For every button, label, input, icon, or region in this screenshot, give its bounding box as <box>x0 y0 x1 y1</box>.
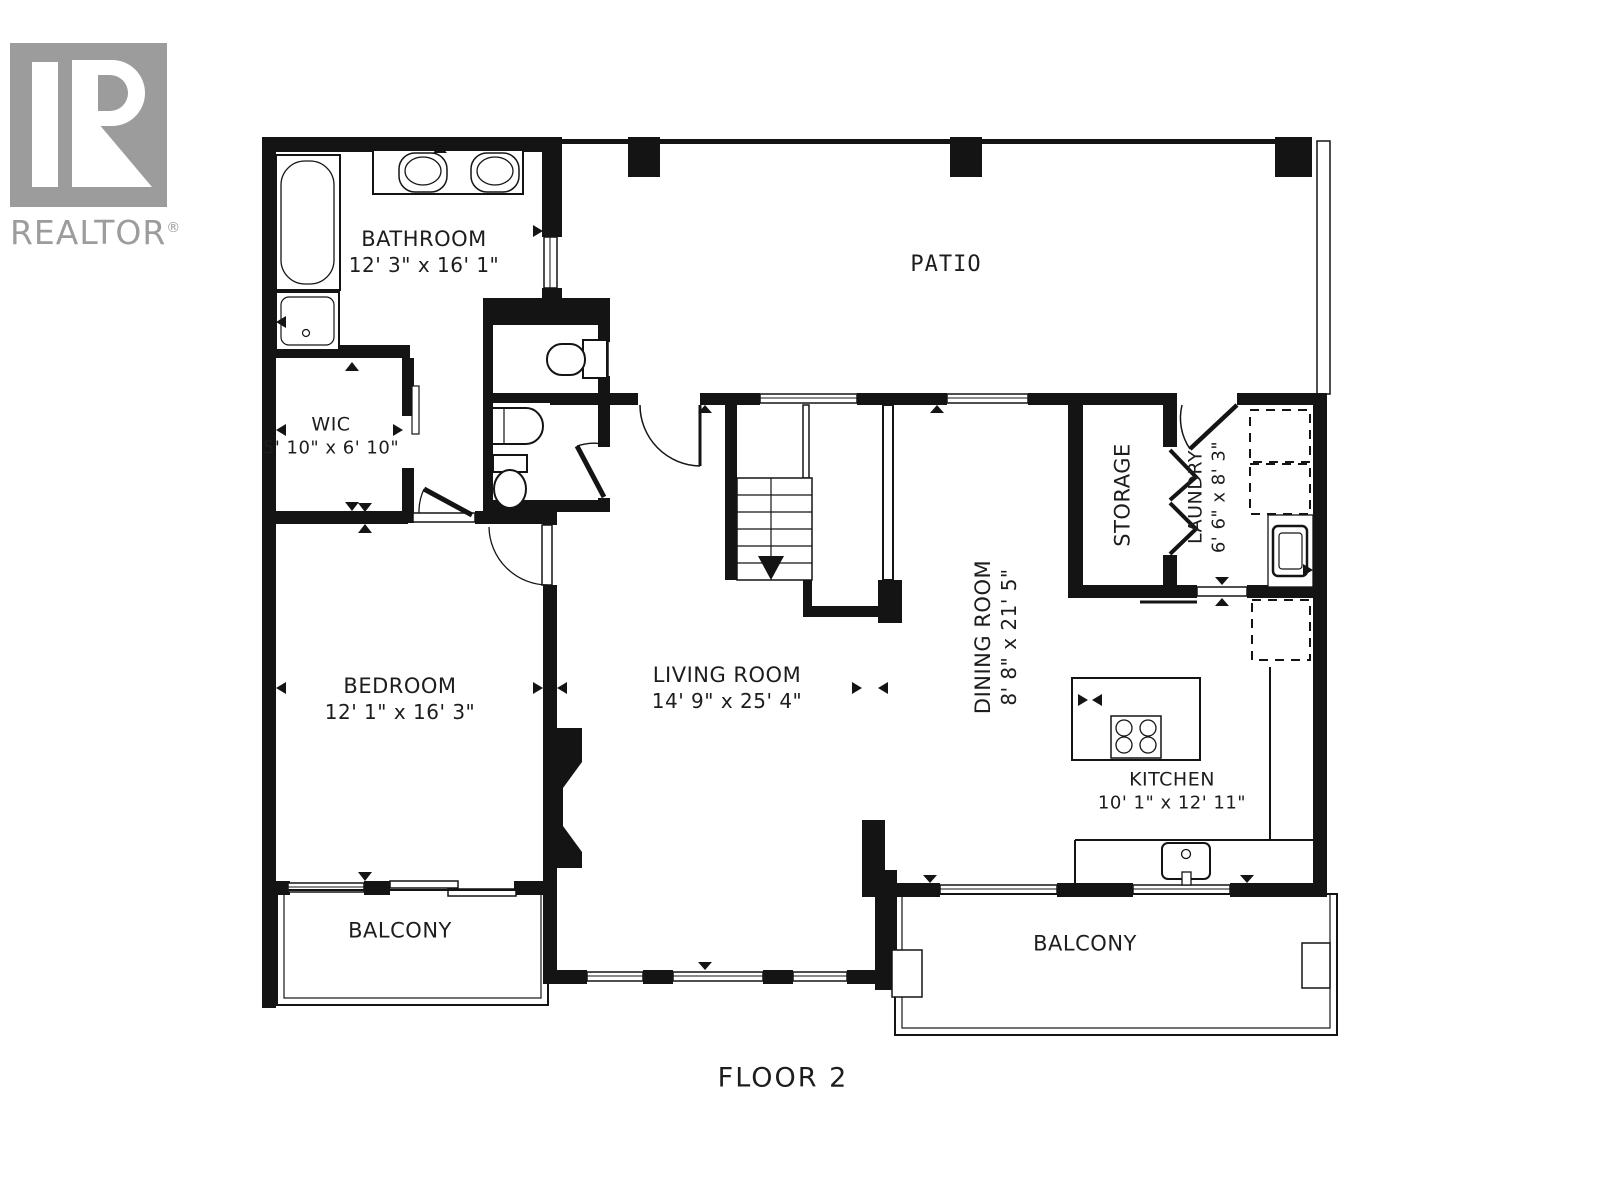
room-label-balcony-left: BALCONY <box>348 918 452 945</box>
kitchen-fixtures <box>1072 600 1313 885</box>
room-name: WIC <box>263 412 399 436</box>
bedroom-door-arc <box>489 527 548 585</box>
room-label-storage: STORAGE <box>1110 443 1137 546</box>
dimension-arrows-part <box>557 682 567 694</box>
room-name: BATHROOM <box>349 226 500 253</box>
room-dims: 14' 9" x 25' 4" <box>652 689 803 715</box>
room-name: BALCONY <box>348 918 452 945</box>
floor-label: FLOOR 2 <box>718 1063 849 1094</box>
walls-part <box>1313 393 1327 897</box>
room-label-laundry: LAUNDRY 6' 6" x 8' 3" <box>1183 441 1230 553</box>
floorplan-page: REALTOR® <box>0 0 1600 1200</box>
room-name: BEDROOM <box>325 673 476 700</box>
dimension-arrows-part <box>923 875 937 883</box>
room-name: PATIO <box>910 251 981 279</box>
walls-part <box>1237 393 1313 405</box>
toilet-tank <box>583 340 607 378</box>
room-dims: 5' 10" x 6' 10" <box>263 437 399 460</box>
fireplace <box>543 728 582 868</box>
washer-dashed <box>1250 410 1310 462</box>
refrigerator-dashed <box>1252 600 1310 660</box>
balcony-railing <box>277 890 548 1005</box>
bedroom-door-leaf <box>542 525 552 585</box>
balcony-railing <box>902 894 1330 1028</box>
balcony-planter <box>892 950 922 997</box>
walls-part <box>725 405 737 580</box>
patio-pillar <box>950 137 982 177</box>
room-name: LIVING ROOM <box>652 662 803 689</box>
dimension-arrows-part <box>533 682 543 694</box>
entry-door-arc <box>640 405 700 466</box>
walls-part <box>542 137 562 237</box>
stair-railing <box>883 405 893 580</box>
dimension-arrows-part <box>878 682 888 694</box>
powder-door-leaf <box>577 446 604 497</box>
room-label-dining-room: DINING ROOM 8' 8" x 21' 5" <box>970 560 1022 714</box>
walls-part <box>550 393 638 405</box>
walls-part <box>483 298 610 325</box>
dimension-arrows-part <box>345 362 359 371</box>
kitchen-fixtures-part <box>1182 872 1191 885</box>
powder-sink <box>492 408 543 444</box>
room-label-kitchen: KITCHEN 10' 1" x 12' 11" <box>1098 767 1246 814</box>
room-dims: 6' 6" x 8' 3" <box>1208 441 1231 553</box>
toilet-bowl <box>494 470 526 508</box>
walls-part <box>878 580 902 623</box>
dimension-arrows-part <box>345 502 359 511</box>
walls-part <box>262 511 408 524</box>
vanity-sink <box>471 153 519 192</box>
patio-railing <box>1317 141 1330 394</box>
walls-part <box>598 403 610 447</box>
room-label-balcony-right: BALCONY <box>1033 931 1137 958</box>
dimension-arrows-part <box>358 503 372 512</box>
floorplan-drawing <box>0 0 1600 1200</box>
walls-part <box>700 393 760 405</box>
walls-part <box>364 881 390 895</box>
room-label-bedroom: BEDROOM 12' 1" x 16' 3" <box>325 673 476 725</box>
walls-part <box>1068 585 1197 598</box>
room-dims: 12' 3" x 16' 1" <box>349 253 500 279</box>
walls-part <box>1028 393 1083 405</box>
walls-part <box>643 970 673 984</box>
walls-part <box>763 970 793 984</box>
room-name: KITCHEN <box>1098 767 1246 791</box>
dryer-dashed <box>1250 464 1310 514</box>
dimension-arrows-part <box>358 524 372 533</box>
room-name: LAUNDRY <box>1183 441 1207 553</box>
room-label-living-room: LIVING ROOM 14' 9" x 25' 4" <box>652 662 803 714</box>
dimension-arrows-part <box>930 405 944 413</box>
room-dims: 8' 8" x 21' 5" <box>997 560 1023 714</box>
stairs <box>737 478 812 580</box>
stair-railing <box>803 405 809 478</box>
window <box>1197 587 1247 596</box>
walls-part <box>550 970 587 984</box>
toilet-bowl <box>547 344 585 375</box>
patio-pillar <box>1275 137 1312 177</box>
laundry-fixtures <box>1250 410 1313 587</box>
walls-part <box>803 606 883 617</box>
walls-part <box>1068 405 1083 597</box>
balcony-planter <box>1302 943 1330 988</box>
room-label-patio: PATIO <box>910 251 981 279</box>
dimension-arrows-part <box>533 225 543 237</box>
dimension-arrows-part <box>698 962 712 970</box>
dimension-arrows-part <box>852 682 862 694</box>
room-name: DINING ROOM <box>970 560 997 714</box>
windows <box>288 237 1247 981</box>
room-label-bathroom: BATHROOM 12' 3" x 16' 1" <box>349 226 500 278</box>
hall-door-leaf <box>424 489 472 515</box>
vanity-sink <box>399 153 447 192</box>
dimension-arrows-part <box>358 872 372 881</box>
patio-pillar <box>628 137 660 177</box>
walls-part <box>262 137 276 1008</box>
walls-part <box>1083 393 1177 405</box>
room-label-wic: WIC 5' 10" x 6' 10" <box>263 412 399 459</box>
dimension-arrows-part <box>1240 875 1254 883</box>
hall-door-arc <box>419 489 424 513</box>
balcony-railing <box>895 894 1337 1035</box>
sliding-door-panel <box>390 881 458 888</box>
dimension-arrows-part <box>276 682 286 694</box>
walls-part <box>543 585 557 728</box>
dimension-arrows-part <box>1215 577 1229 585</box>
room-name: BALCONY <box>1033 931 1137 958</box>
bathtub <box>276 155 340 290</box>
walls-part <box>1163 405 1177 447</box>
walls-part <box>514 881 557 895</box>
room-name: STORAGE <box>1110 443 1137 546</box>
walls-part <box>857 393 947 405</box>
pocket-door <box>412 386 419 434</box>
room-dims: 10' 1" x 12' 11" <box>1098 792 1246 815</box>
walls-part <box>543 511 557 525</box>
dimension-arrows-part <box>1215 598 1229 606</box>
room-dims: 12' 1" x 16' 3" <box>325 700 476 726</box>
